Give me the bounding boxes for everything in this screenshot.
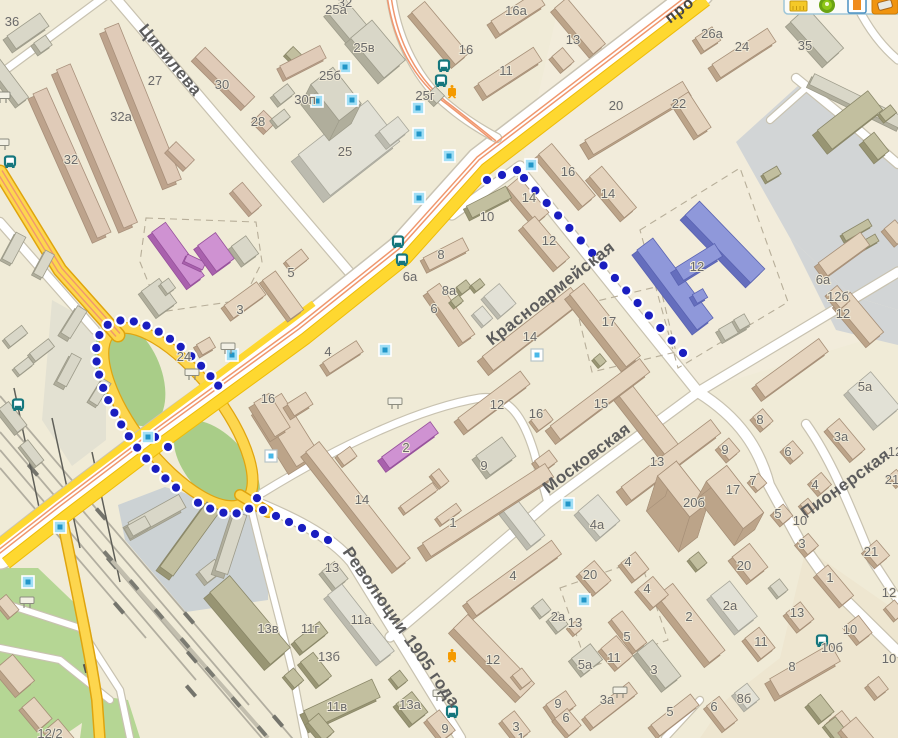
svg-text:4а: 4а [590,517,605,532]
svg-text:1: 1 [826,570,833,585]
svg-text:4: 4 [643,581,650,596]
svg-text:10: 10 [882,651,896,666]
svg-text:6: 6 [562,710,569,725]
svg-text:8б: 8б [737,691,752,706]
svg-text:10: 10 [793,513,807,528]
svg-text:14: 14 [355,492,369,507]
svg-text:28: 28 [251,114,265,129]
svg-text:25г: 25г [415,88,434,103]
svg-text:13: 13 [325,560,339,575]
svg-text:21: 21 [885,472,898,487]
svg-text:12: 12 [882,585,896,600]
svg-text:9: 9 [441,721,448,736]
svg-text:21: 21 [864,544,878,559]
svg-text:8а: 8а [442,283,457,298]
svg-text:14: 14 [523,329,537,344]
svg-text:12: 12 [542,233,556,248]
svg-text:10б: 10б [821,640,843,655]
svg-text:4: 4 [624,554,631,569]
svg-text:1: 1 [449,515,456,530]
svg-text:17: 17 [726,482,740,497]
svg-text:5: 5 [287,265,294,280]
svg-text:22: 22 [672,96,686,111]
svg-text:5а: 5а [578,657,593,672]
svg-text:10: 10 [843,622,857,637]
svg-text:12: 12 [490,397,504,412]
svg-text:16: 16 [561,164,575,179]
svg-text:3а: 3а [600,692,615,707]
svg-text:16: 16 [529,406,543,421]
svg-text:20: 20 [583,567,597,582]
svg-text:36: 36 [5,14,19,29]
svg-text:4: 4 [509,568,516,583]
svg-text:15: 15 [594,396,608,411]
svg-text:35: 35 [798,38,812,53]
svg-text:16а: 16а [505,3,527,18]
svg-text:20б: 20б [683,495,705,510]
svg-text:32а: 32а [110,109,132,124]
svg-text:13: 13 [568,615,582,630]
svg-text:30: 30 [215,77,229,92]
svg-text:2: 2 [685,609,692,624]
svg-text:20: 20 [609,98,623,113]
svg-text:20: 20 [737,558,751,573]
svg-text:10: 10 [480,209,494,224]
svg-text:1: 1 [517,730,524,738]
svg-text:2: 2 [402,440,409,455]
svg-text:25а: 25а [325,2,347,17]
svg-text:30п: 30п [294,92,316,107]
svg-text:6: 6 [710,699,717,714]
svg-text:14: 14 [522,190,536,205]
svg-text:12: 12 [888,444,898,459]
svg-text:13б: 13б [318,649,340,664]
svg-text:11в: 11в [327,699,347,714]
svg-text:12: 12 [836,306,850,321]
svg-text:9: 9 [480,458,487,473]
svg-text:6: 6 [784,444,791,459]
svg-text:8: 8 [756,412,763,427]
svg-text:25б: 25б [319,68,341,83]
svg-text:6а: 6а [403,269,418,284]
svg-text:13в: 13в [257,621,278,636]
svg-text:9: 9 [721,442,728,457]
svg-text:2а: 2а [723,598,738,613]
svg-text:13а: 13а [399,697,421,712]
svg-text:4: 4 [811,477,818,492]
svg-text:7: 7 [749,473,756,488]
svg-text:11г: 11г [301,621,319,636]
svg-text:24: 24 [177,349,191,364]
svg-text:9: 9 [554,696,561,711]
svg-text:3: 3 [798,536,805,551]
svg-text:11а: 11а [351,612,372,627]
svg-text:25: 25 [338,144,352,159]
svg-text:6: 6 [430,301,437,316]
svg-text:2а: 2а [551,609,566,624]
svg-text:4: 4 [324,344,331,359]
svg-text:3а: 3а [834,429,849,444]
svg-text:12б: 12б [827,289,849,304]
svg-text:11: 11 [607,650,621,665]
svg-text:27: 27 [148,73,162,88]
svg-text:5а: 5а [858,379,873,394]
svg-text:16: 16 [261,391,275,406]
svg-text:5: 5 [774,506,781,521]
svg-text:24: 24 [735,39,749,54]
svg-text:6а: 6а [816,272,831,287]
svg-text:12: 12 [486,652,500,667]
svg-text:14: 14 [601,186,615,201]
svg-text:11: 11 [754,634,768,649]
svg-text:13: 13 [566,32,580,47]
svg-text:32: 32 [64,152,78,167]
svg-text:11: 11 [499,63,513,78]
svg-text:13: 13 [790,605,804,620]
svg-text:5: 5 [623,629,630,644]
svg-text:3: 3 [236,302,243,317]
svg-text:16: 16 [459,42,473,57]
svg-text:17: 17 [602,314,616,329]
svg-text:5: 5 [666,704,673,719]
svg-text:25в: 25в [353,40,374,55]
svg-text:12: 12 [690,259,704,274]
svg-text:26а: 26а [701,26,723,41]
svg-text:8: 8 [437,247,444,262]
svg-text:3: 3 [650,662,657,677]
svg-text:13: 13 [650,454,664,469]
svg-text:12/2: 12/2 [37,726,62,738]
svg-text:8: 8 [788,659,795,674]
